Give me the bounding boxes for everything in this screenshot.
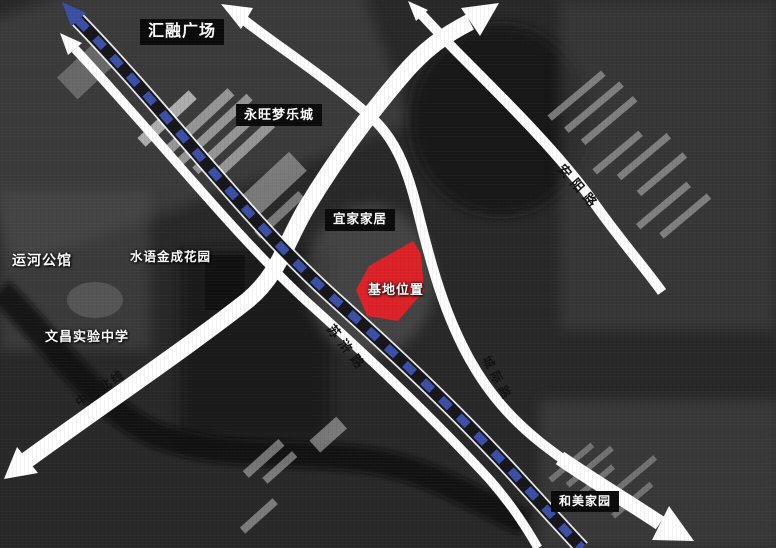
satellite-map-canvas [0, 0, 776, 548]
label-huirong-plaza: 汇融广场 [140, 19, 224, 45]
label-shuiyu-jincheng-garden: 水语金成花园 [130, 246, 211, 265]
label-yunhe-mansion: 运河公馆 [12, 250, 72, 270]
label-hemei-homeland: 和美家园 [551, 491, 619, 512]
label-aeon-dream-mall: 永旺梦乐城 [236, 104, 322, 126]
site-location-map: 汇融广场 永旺梦乐城 宜家家居 基地位置 运河公馆 水语金成花园 文昌实验中学 … [0, 0, 776, 548]
label-ikea-home: 宜家家居 [325, 209, 395, 231]
label-wenchang-experimental-school: 文昌实验中学 [45, 326, 129, 345]
label-site-location: 基地位置 [368, 279, 424, 298]
